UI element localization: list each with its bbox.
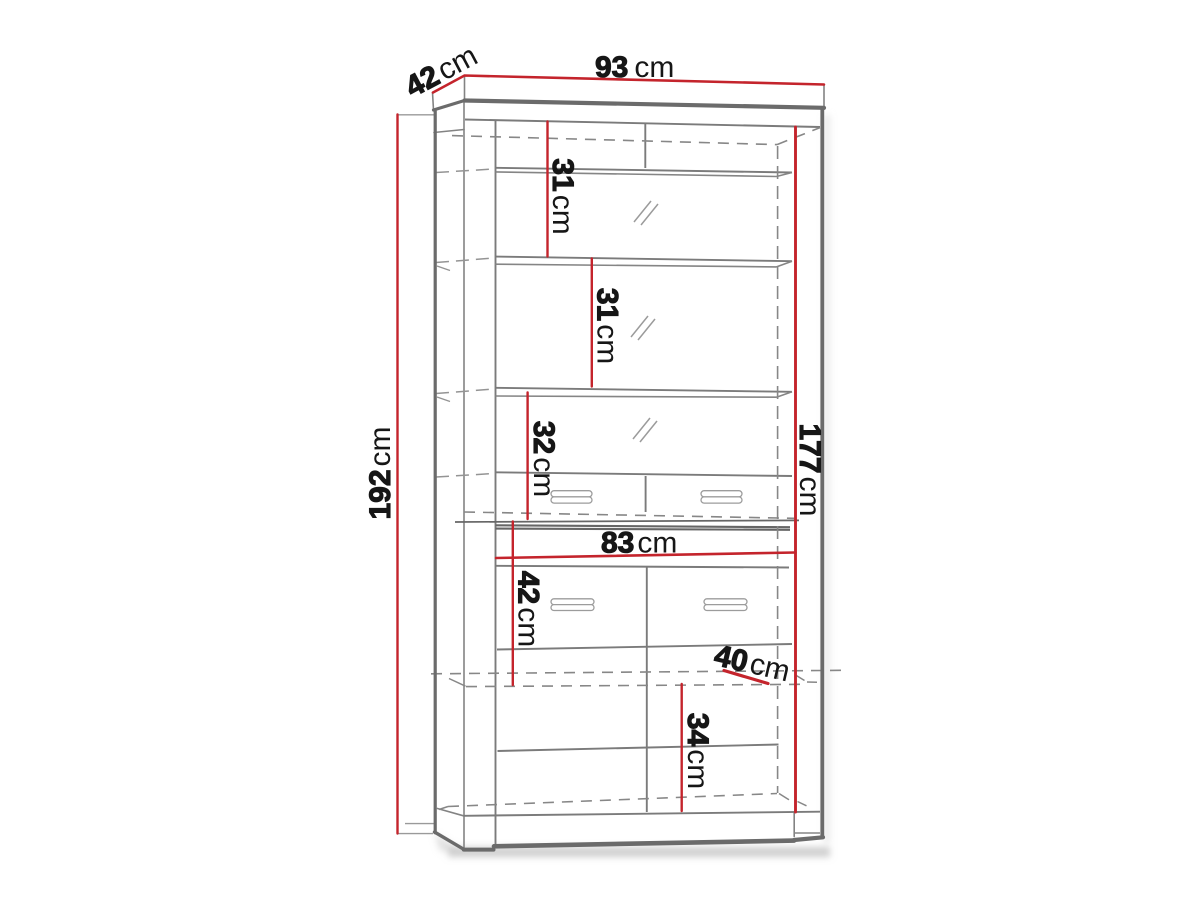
svg-text:93cm: 93cm [595, 51, 674, 84]
svg-text:34cm: 34cm [681, 713, 714, 789]
svg-text:192cm: 192cm [364, 426, 397, 519]
svg-text:31cm: 31cm [591, 288, 624, 364]
svg-text:32cm: 32cm [527, 421, 560, 497]
svg-text:177cm: 177cm [793, 423, 826, 516]
svg-text:31cm: 31cm [546, 158, 579, 234]
svg-text:83cm: 83cm [601, 527, 677, 560]
svg-text:42cm: 42cm [512, 571, 545, 647]
